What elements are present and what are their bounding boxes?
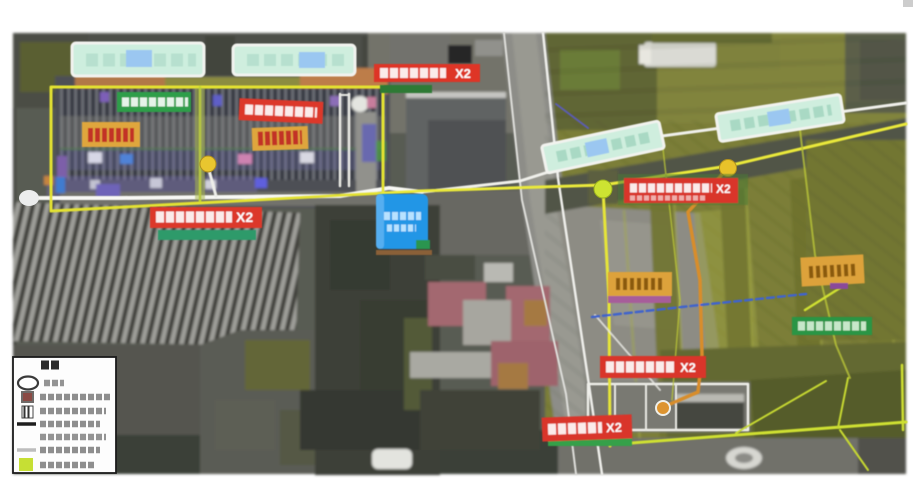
svg-text:X2: X2 xyxy=(716,182,731,196)
svg-text:X2: X2 xyxy=(236,209,253,225)
svg-text:X2: X2 xyxy=(455,66,471,81)
svg-text:X2: X2 xyxy=(606,420,622,436)
svg-text:X2: X2 xyxy=(680,360,696,375)
